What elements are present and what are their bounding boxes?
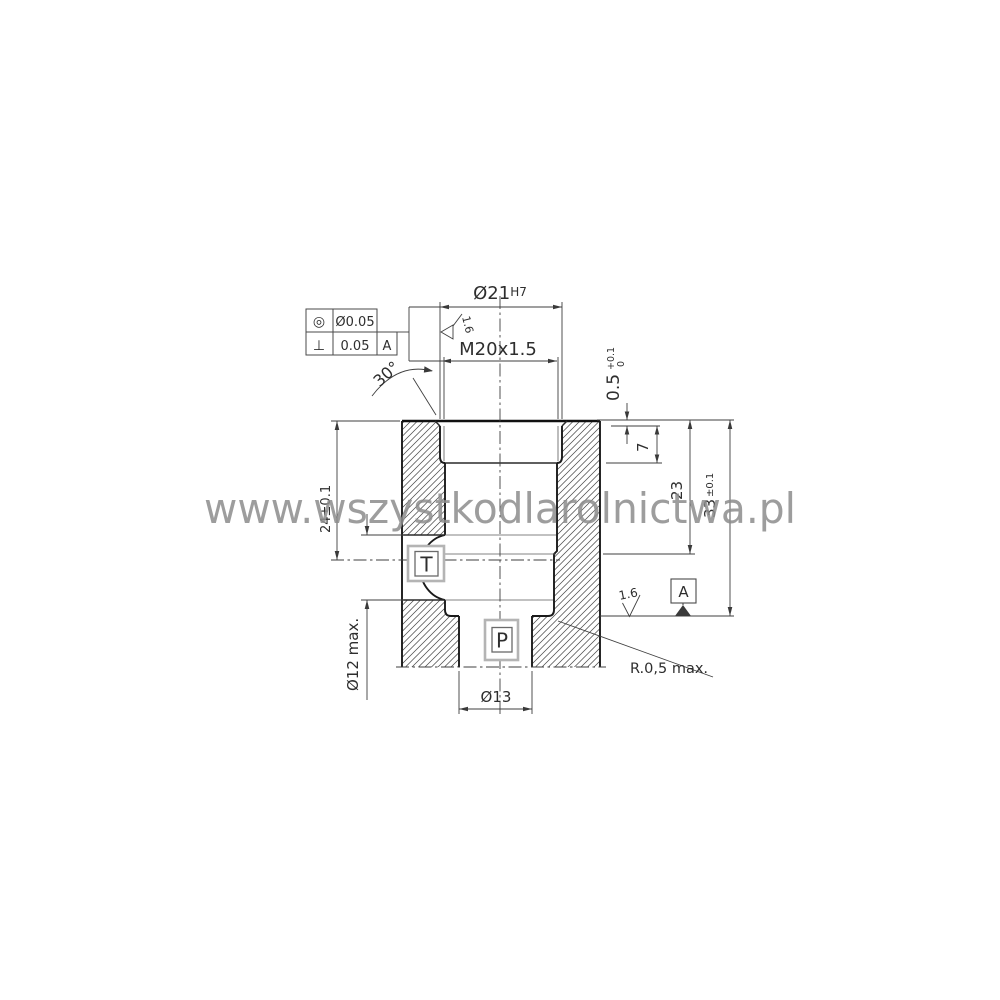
thread-depth-dim: 7 [634,442,652,452]
port-t-letter: T [419,553,433,577]
port-p-label: P [485,620,518,660]
hatch-lower-left [402,600,459,667]
engineering-drawing-page: ◎ Ø0.05 ⊥ 0.05 A Ø21H7 M20x1.5 30° 0.5 +… [0,0,1000,1000]
roughness-thread-value: 1.6 [459,315,476,335]
technical-drawing: ◎ Ø0.05 ⊥ 0.05 A Ø21H7 M20x1.5 30° 0.5 +… [0,0,1000,1000]
outlet-diameter-dim: Ø13 [481,688,512,706]
port-t-label: T [408,546,444,581]
feature-control-frame: ◎ Ø0.05 ⊥ 0.05 A [306,309,397,355]
roughness-seat-icon: 1.6 [618,585,640,616]
port-diameter-dim: Ø12 max. [344,618,362,691]
fcf-concentricity-value: Ø0.05 [335,315,374,330]
fillet-dim: R.0,5 max. [630,661,708,677]
hatch-right [532,421,600,667]
datum-triangle-icon [675,605,691,616]
roughness-seat-value: 1.6 [618,585,639,602]
datum-label: A [678,583,689,601]
svg-text:0: 0 [616,361,627,367]
chamfer-extension [413,378,436,415]
fcf-datum-ref: A [383,339,392,354]
datum-flag: A [671,579,696,616]
port-p-letter: P [496,629,508,653]
svg-text:0.5: 0.5 [604,374,624,401]
concentricity-icon: ◎ [313,314,325,330]
fcf-perpendicularity-value: 0.05 [341,339,370,354]
thread-dim: M20x1.5 [459,339,537,360]
perpendicularity-icon: ⊥ [313,338,325,354]
watermark: www.wszystkodlarolnictwa.pl [204,484,796,533]
bore-diameter-dim: Ø21H7 [473,283,527,304]
chamfer-angle-dim: 30° [369,357,403,390]
roughness-thread-icon: 1.6 [441,314,476,339]
recess-depth-dim: 0.5 +0.1 0 [604,347,627,401]
